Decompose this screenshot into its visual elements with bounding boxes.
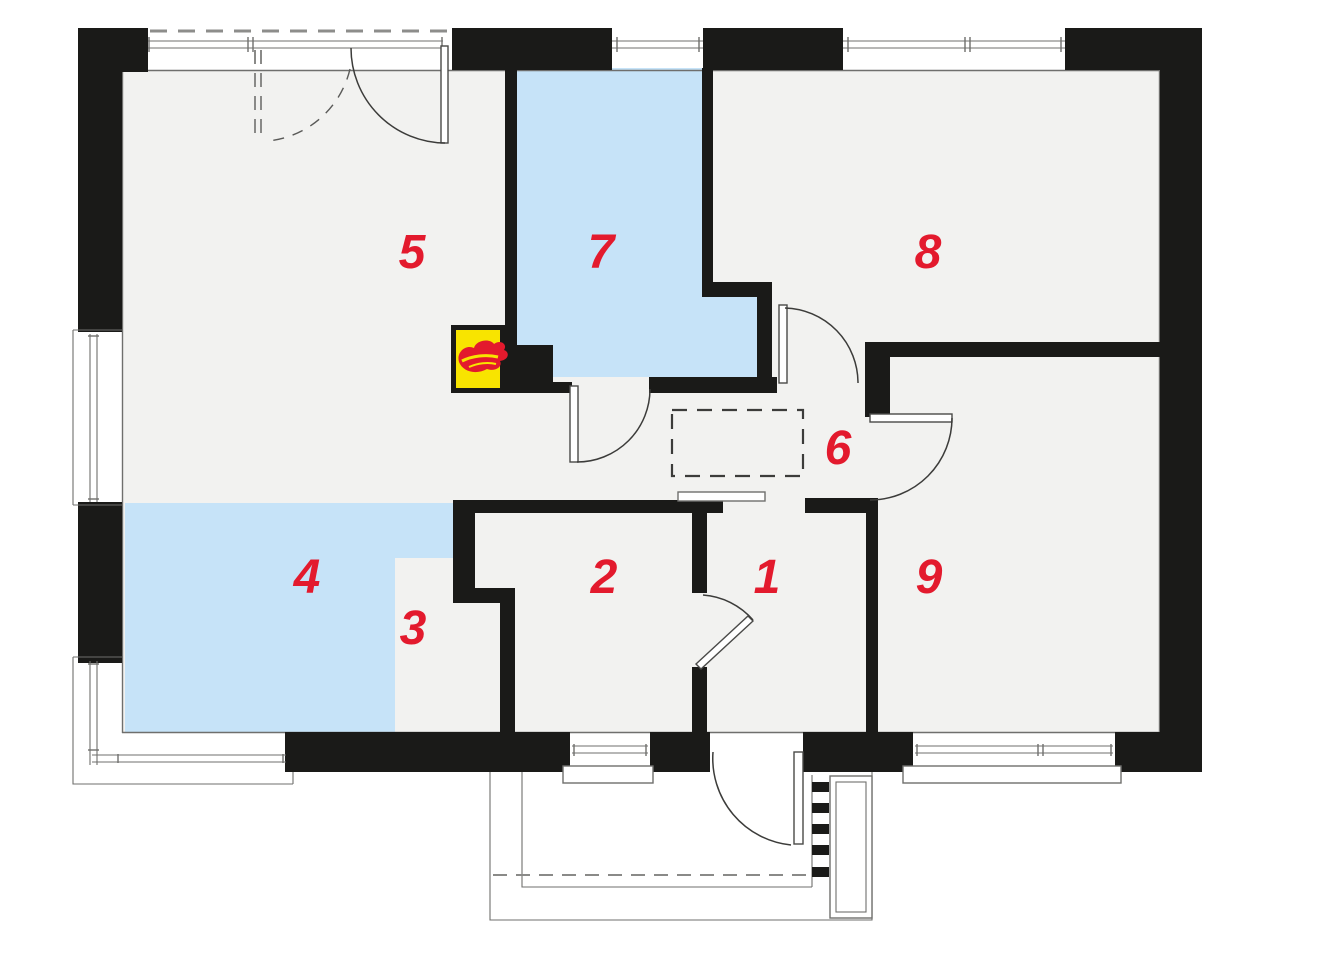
wall-segment (866, 498, 878, 733)
entrance-porch (490, 772, 872, 920)
wall-segment (692, 503, 707, 593)
stair-tread (812, 845, 829, 855)
room-label-8: 8 (915, 226, 942, 279)
bathroom-floor-extension (702, 297, 757, 377)
door-swing-arc (713, 752, 791, 845)
window-sill (563, 766, 653, 783)
wall-segment (757, 297, 772, 393)
room-label-9: 9 (916, 551, 943, 604)
window-glazing (90, 334, 97, 502)
window (148, 38, 443, 51)
wall-segment (702, 282, 772, 297)
window (913, 738, 1115, 766)
wall-segment (453, 500, 475, 603)
room-label-2: 2 (590, 551, 618, 604)
room-label-7: 7 (588, 226, 617, 279)
room-label-3: 3 (400, 602, 427, 655)
stair-tread (812, 803, 829, 813)
door-leaf (779, 305, 787, 383)
threshold (678, 492, 765, 501)
bathroom-floor (517, 68, 702, 377)
floor-plan: 1 2 3 4 5 6 7 8 9 (0, 0, 1327, 953)
window (570, 738, 650, 766)
window (612, 38, 703, 51)
boiler-icon (451, 325, 508, 393)
wall-segment (500, 588, 515, 732)
wall-segment (505, 68, 517, 345)
wall-segment (702, 68, 713, 297)
floors (122, 68, 1160, 733)
room-label-6: 6 (825, 422, 852, 475)
window (843, 38, 1065, 51)
wall-segment (703, 28, 843, 70)
wall-segment (865, 342, 890, 417)
stair-tread (812, 824, 829, 834)
wall-segment (1160, 28, 1202, 772)
kitchen-floor-upper (125, 503, 455, 558)
wall-segment (890, 342, 1160, 357)
wall-segment (452, 28, 612, 70)
wall-segment (285, 732, 570, 772)
wall-segment (453, 500, 723, 513)
stair-tread (812, 782, 829, 792)
wall-segment (1115, 732, 1202, 772)
room-label-1: 1 (754, 551, 781, 604)
wall-segment (78, 28, 122, 332)
door-leaf (870, 414, 952, 422)
wall-segment (78, 502, 122, 663)
wall-segment (692, 667, 707, 732)
left-window (73, 330, 122, 505)
wall-segment (505, 345, 553, 382)
window-sill (903, 766, 1121, 783)
room-label-4: 4 (293, 551, 321, 604)
window-glazing (92, 755, 286, 762)
floor-plan-drawing: 1 2 3 4 5 6 7 8 9 (0, 0, 1327, 953)
door-leaf (441, 46, 448, 143)
stairs (812, 776, 872, 918)
door-leaf (794, 752, 803, 844)
stair-tread (812, 867, 829, 877)
wall-segment (803, 732, 913, 772)
wall-segment (650, 732, 710, 772)
door-leaf (570, 386, 578, 462)
kitchen-floor-lower (125, 558, 395, 733)
porch-inner-line (522, 772, 812, 887)
room-label-5: 5 (399, 226, 427, 279)
wall-segment (805, 498, 877, 513)
